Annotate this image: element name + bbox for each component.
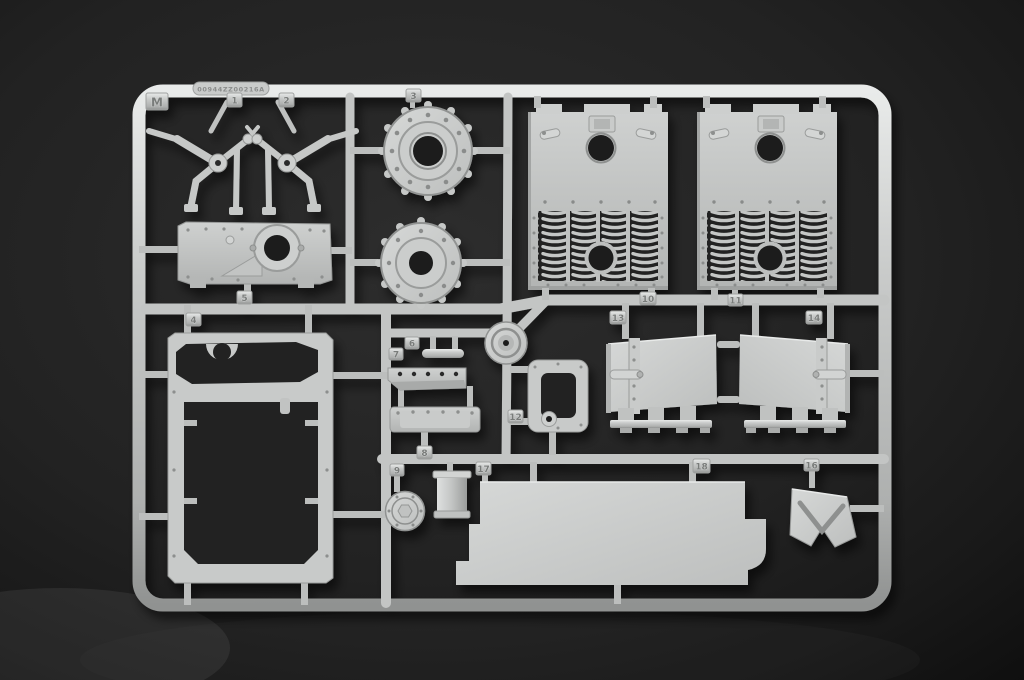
part-7-wedge-strip xyxy=(388,368,466,390)
part-10-grille-plate xyxy=(528,96,668,300)
svg-text:9: 9 xyxy=(394,467,400,477)
tag-6: 6 xyxy=(405,337,419,350)
svg-text:8: 8 xyxy=(421,449,427,459)
svg-text:4: 4 xyxy=(190,316,196,326)
svg-text:2: 2 xyxy=(283,97,289,107)
part-11-grille-plate xyxy=(697,96,837,300)
tag-13: 13 xyxy=(610,311,626,324)
sprue-photo: 00944ZZ00216A xyxy=(0,0,1024,680)
part-4-floor-frame xyxy=(168,333,333,583)
tag-16: 16 xyxy=(804,459,819,472)
part-8-bolted-plate xyxy=(390,407,480,432)
tag-11: 11 xyxy=(728,294,743,307)
svg-text:M: M xyxy=(151,96,163,110)
svg-text:17: 17 xyxy=(477,465,490,475)
part-12-small-frame xyxy=(528,360,588,432)
svg-text:16: 16 xyxy=(805,462,818,472)
svg-text:10: 10 xyxy=(642,295,655,305)
tag-12: 12 xyxy=(508,410,523,423)
svg-text:5: 5 xyxy=(241,294,247,304)
tag-17: 17 xyxy=(476,462,491,475)
tag-5: 5 xyxy=(237,291,252,304)
tag-4: 4 xyxy=(186,313,201,326)
svg-text:6: 6 xyxy=(409,340,415,350)
svg-text:7: 7 xyxy=(393,351,399,361)
svg-text:1: 1 xyxy=(231,97,237,107)
tag-18: 18 xyxy=(693,459,710,473)
svg-text:11: 11 xyxy=(729,297,742,307)
svg-text:3: 3 xyxy=(410,92,416,102)
photo-canvas: 00944ZZ00216A xyxy=(0,0,1024,680)
tag-1: 1 xyxy=(227,93,242,107)
tag-10: 10 xyxy=(640,292,656,305)
tag-9: 9 xyxy=(390,464,404,477)
tag-2: 2 xyxy=(279,93,294,107)
svg-text:12: 12 xyxy=(509,413,522,423)
svg-text:13: 13 xyxy=(612,314,625,324)
tag-14: 14 xyxy=(806,311,822,324)
tag-7: 7 xyxy=(389,348,403,361)
embossed-code-text: 00944ZZ00216A xyxy=(197,86,264,94)
part-5-gearbox-plate xyxy=(178,222,332,288)
part-18-hull-panel xyxy=(456,482,766,585)
part-9-hub-cap xyxy=(386,492,425,531)
svg-text:14: 14 xyxy=(808,314,821,324)
part-17-small-box xyxy=(433,471,471,518)
pulley-junction xyxy=(485,322,527,364)
tag-8: 8 xyxy=(417,446,432,459)
tag-3: 3 xyxy=(406,89,421,102)
tag-m: M xyxy=(146,93,168,110)
svg-text:18: 18 xyxy=(695,463,708,473)
part-6-rod xyxy=(422,349,464,358)
